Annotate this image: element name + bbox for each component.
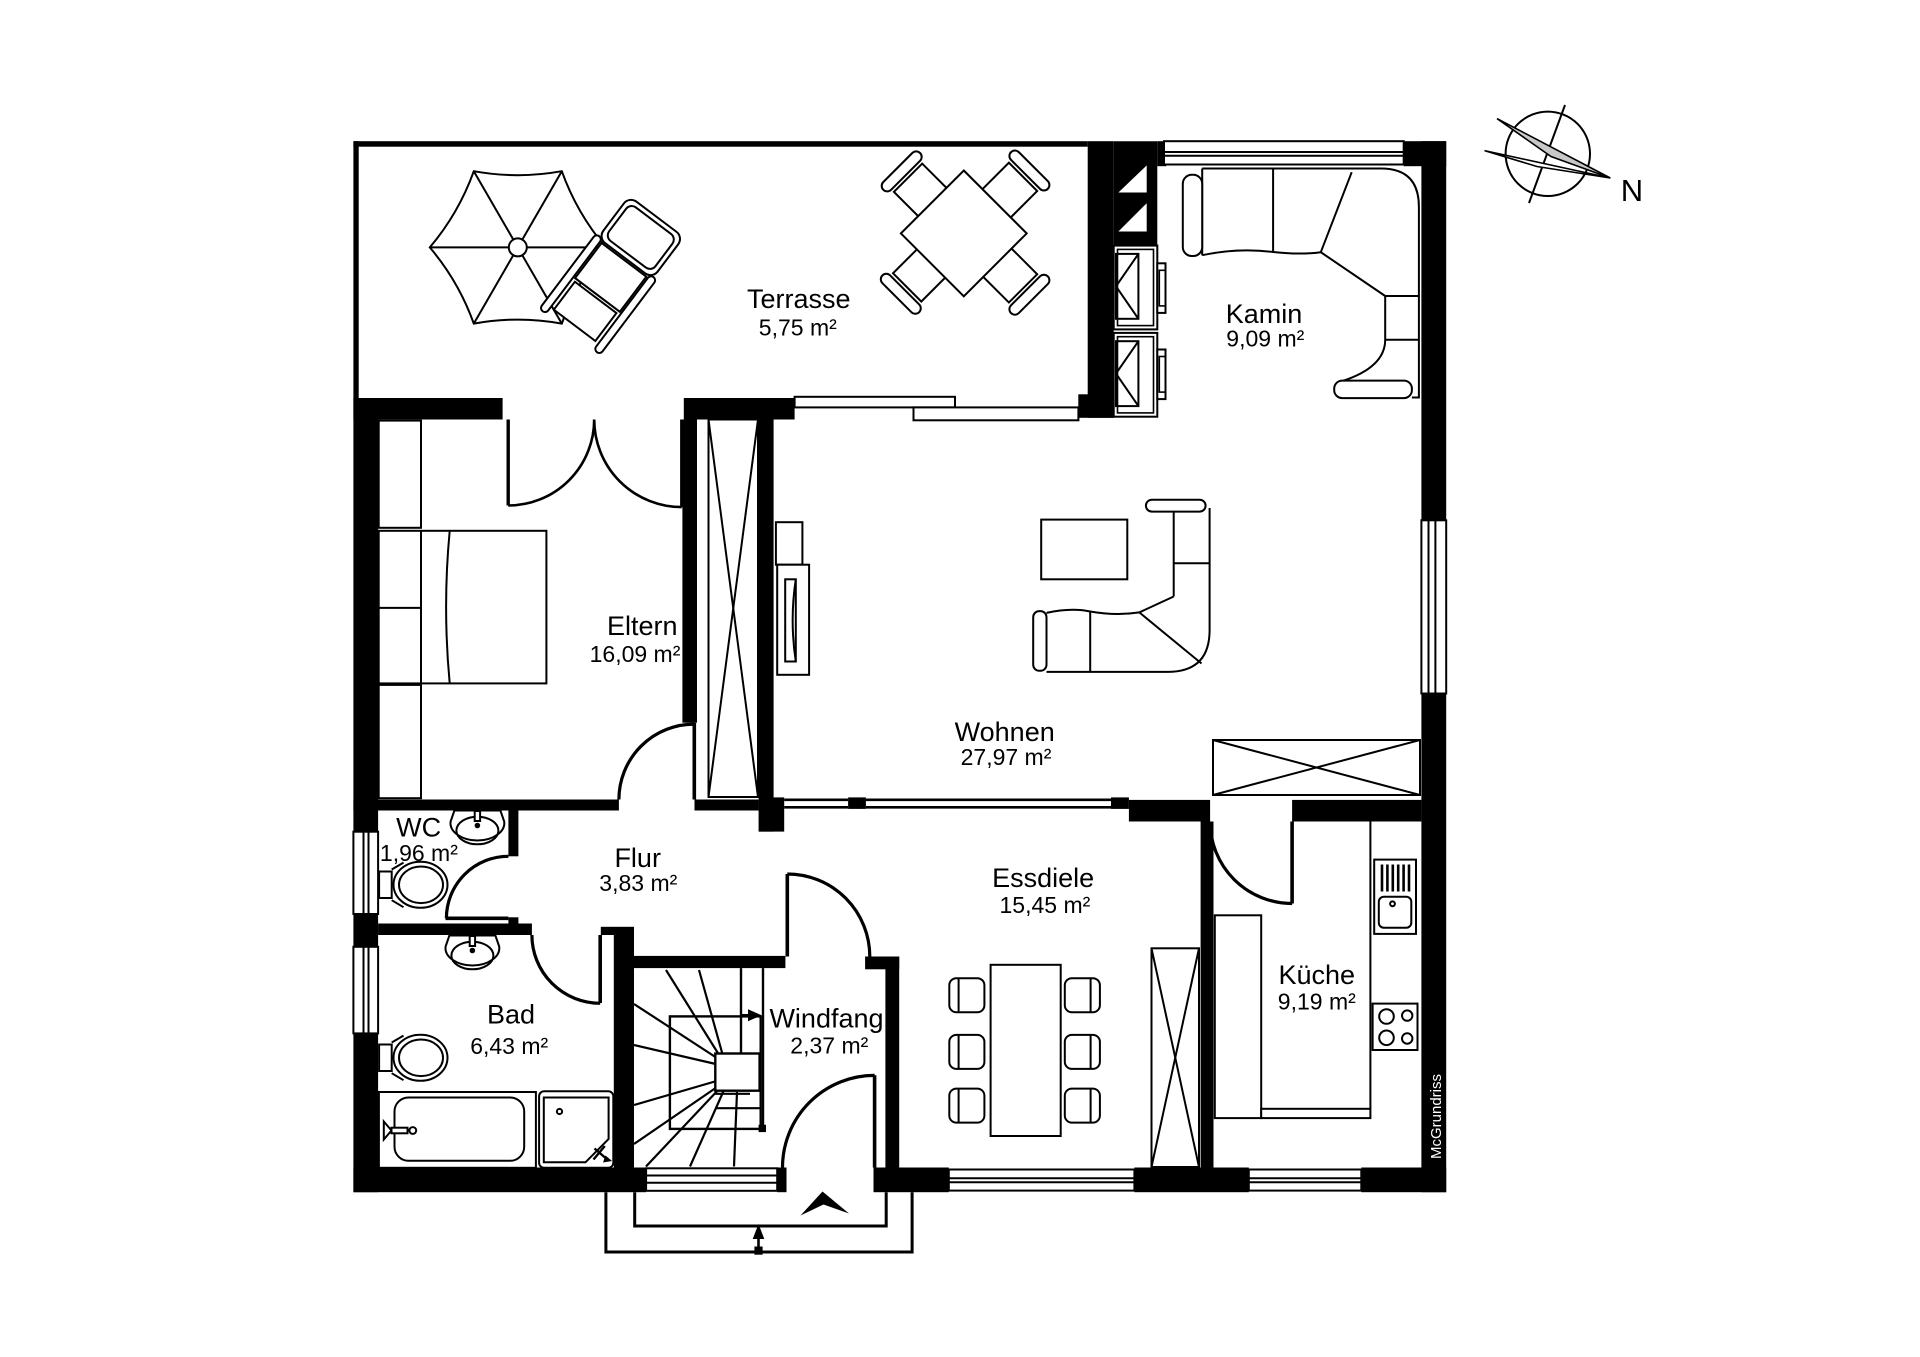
svg-text:9,09 m²: 9,09 m² — [1226, 325, 1304, 351]
svg-text:Küche: Küche — [1279, 960, 1356, 990]
svg-text:McGrundriss: McGrundriss — [1428, 1074, 1445, 1159]
svg-text:Essdiele: Essdiele — [992, 863, 1094, 893]
svg-text:6,43 m²: 6,43 m² — [470, 1033, 548, 1059]
svg-text:Windfang: Windfang — [769, 1004, 883, 1034]
svg-text:5,75 m²: 5,75 m² — [759, 315, 837, 341]
svg-text:1,96 m²: 1,96 m² — [380, 840, 458, 866]
svg-text:Eltern: Eltern — [607, 611, 678, 641]
svg-text:Bad: Bad — [487, 1000, 535, 1030]
svg-text:9,19 m²: 9,19 m² — [1278, 989, 1356, 1015]
svg-text:Terrasse: Terrasse — [747, 284, 851, 314]
svg-text:WC: WC — [396, 812, 441, 842]
svg-text:16,09 m²: 16,09 m² — [590, 641, 681, 667]
svg-text:Flur: Flur — [614, 843, 661, 873]
svg-text:Wohnen: Wohnen — [955, 717, 1055, 747]
svg-text:27,97 m²: 27,97 m² — [961, 744, 1052, 770]
svg-text:N: N — [1621, 173, 1643, 208]
svg-text:15,45 m²: 15,45 m² — [1000, 892, 1091, 918]
svg-text:3,83 m²: 3,83 m² — [599, 870, 677, 896]
svg-text:2,37 m²: 2,37 m² — [790, 1033, 868, 1059]
